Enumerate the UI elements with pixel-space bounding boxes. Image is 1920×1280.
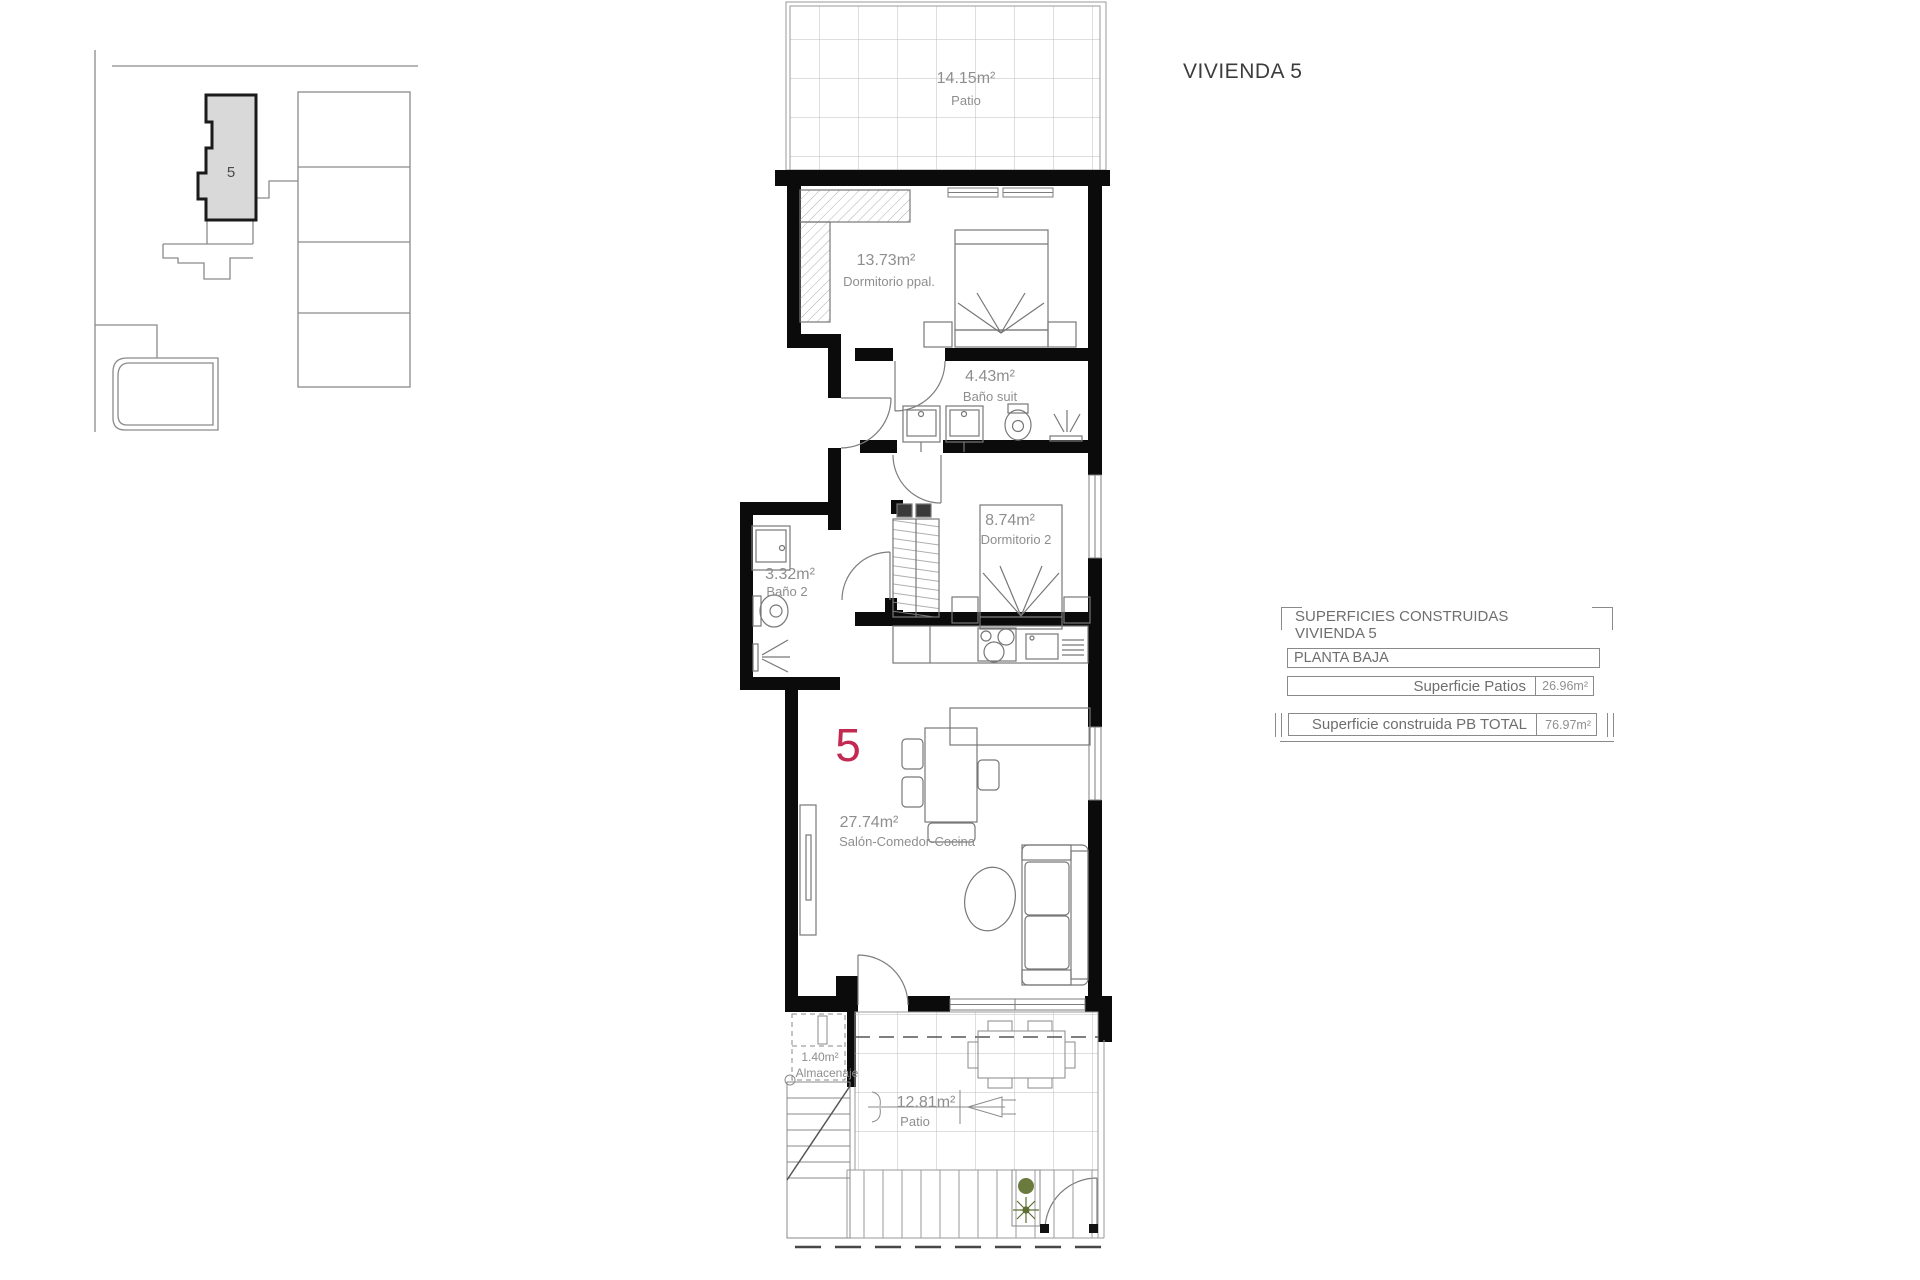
room-label-almacenaje-name: Almacenaje [796, 1066, 859, 1080]
summary-table-header: SUPERFICIES CONSTRUIDAS VIVIENDA 5 [1295, 608, 1508, 642]
floor-plan-page: 5 VIVIENDA 5 14.15m² Patio 13.73m² Dormi… [0, 0, 1920, 1280]
summary-row-patios-value: 26.96m² [1536, 679, 1593, 693]
room-label-bano2-area: 3.32m² [765, 566, 815, 584]
page-title: VIVIENDA 5 [1183, 60, 1302, 84]
room-label-dormitorio2-name: Dormitorio 2 [981, 532, 1052, 547]
site-pool-outline [113, 358, 218, 430]
summary-row-total: Superficie construida PB TOTAL 76.97m² [1288, 713, 1597, 736]
dining-table [925, 728, 977, 822]
door-bano2 [842, 552, 890, 600]
patio-bottom-tiles [855, 1012, 1098, 1170]
summary-section-label: PLANTA BAJA [1294, 650, 1389, 666]
summary-row-patios-label: Superficie Patios [1288, 677, 1536, 695]
summary-row-total-label: Superficie construida PB TOTAL [1289, 714, 1537, 735]
shower-bath2-icon [762, 640, 790, 672]
summary-section-box: PLANTA BAJA [1287, 648, 1600, 668]
plan-graphics [0, 0, 1920, 1280]
room-label-patio-bottom-name: Patio [900, 1114, 930, 1129]
door-dormitorio2 [893, 455, 941, 503]
site-plan [95, 50, 418, 432]
table-bracket-left [1275, 713, 1282, 737]
room-label-patio-bottom-area: 12.81m² [897, 1094, 956, 1112]
room-label-salon-name: Salón-Comedor-Cocina [839, 834, 975, 849]
table-bracket-topright [1592, 607, 1613, 630]
room-label-dormitorio2-area: 8.74m² [985, 512, 1035, 530]
room-label-banosuite-area: 4.43m² [965, 368, 1015, 386]
sofa [1022, 845, 1088, 985]
room-label-salon-area: 27.74m² [840, 814, 899, 832]
kitchen-sink [1026, 634, 1058, 659]
site-neighbor-block [298, 92, 410, 387]
room-label-banosuite-name: Baño suit [963, 389, 1017, 404]
patio-bottom [785, 1012, 1110, 1247]
room-label-dormppal-area: 13.73m² [857, 252, 916, 270]
patio-deck-strip [847, 1170, 1098, 1238]
summary-header-line1: SUPERFICIES CONSTRUIDAS [1295, 608, 1508, 625]
site-unit-5-highlight [198, 95, 256, 220]
door-banosuite [895, 361, 945, 411]
table-bottom-line [1280, 741, 1614, 742]
summary-table: SUPERFICIES CONSTRUIDAS VIVIENDA 5 PLANT… [1270, 600, 1620, 755]
closet-dormppal-side [800, 222, 830, 322]
plant-icon [1018, 1178, 1034, 1194]
room-label-bano2-name: Baño 2 [766, 584, 807, 599]
room-label-patio-top-area: 14.15m² [937, 70, 996, 88]
shower-suite-icon [1054, 410, 1080, 432]
summary-row-patios: Superficie Patios 26.96m² [1287, 676, 1594, 696]
kitchen-peninsula [950, 708, 1090, 745]
summary-row-total-value: 76.97m² [1537, 718, 1596, 732]
room-label-dormppal-name: Dormitorio ppal. [843, 274, 935, 289]
room-label-patio-top-name: Patio [951, 93, 981, 108]
table-bracket-right [1607, 713, 1614, 737]
bed-dormppal [924, 230, 1076, 347]
hob [978, 628, 1016, 661]
door-entrance [858, 955, 908, 1005]
patio-top-tiles [790, 6, 1100, 170]
tv-unit [800, 805, 816, 935]
rug [959, 863, 1021, 936]
summary-header-line2: VIVIENDA 5 [1295, 625, 1508, 642]
unit-number-label: 5 [835, 722, 861, 768]
room-label-almacenaje-area: 1.40m² [801, 1050, 838, 1064]
kitchen-counter [893, 626, 1088, 663]
site-unit-number: 5 [227, 164, 235, 181]
bathroom2-fixtures [752, 526, 790, 672]
closet-dormppal-top [800, 190, 910, 222]
stairs [787, 1082, 850, 1238]
